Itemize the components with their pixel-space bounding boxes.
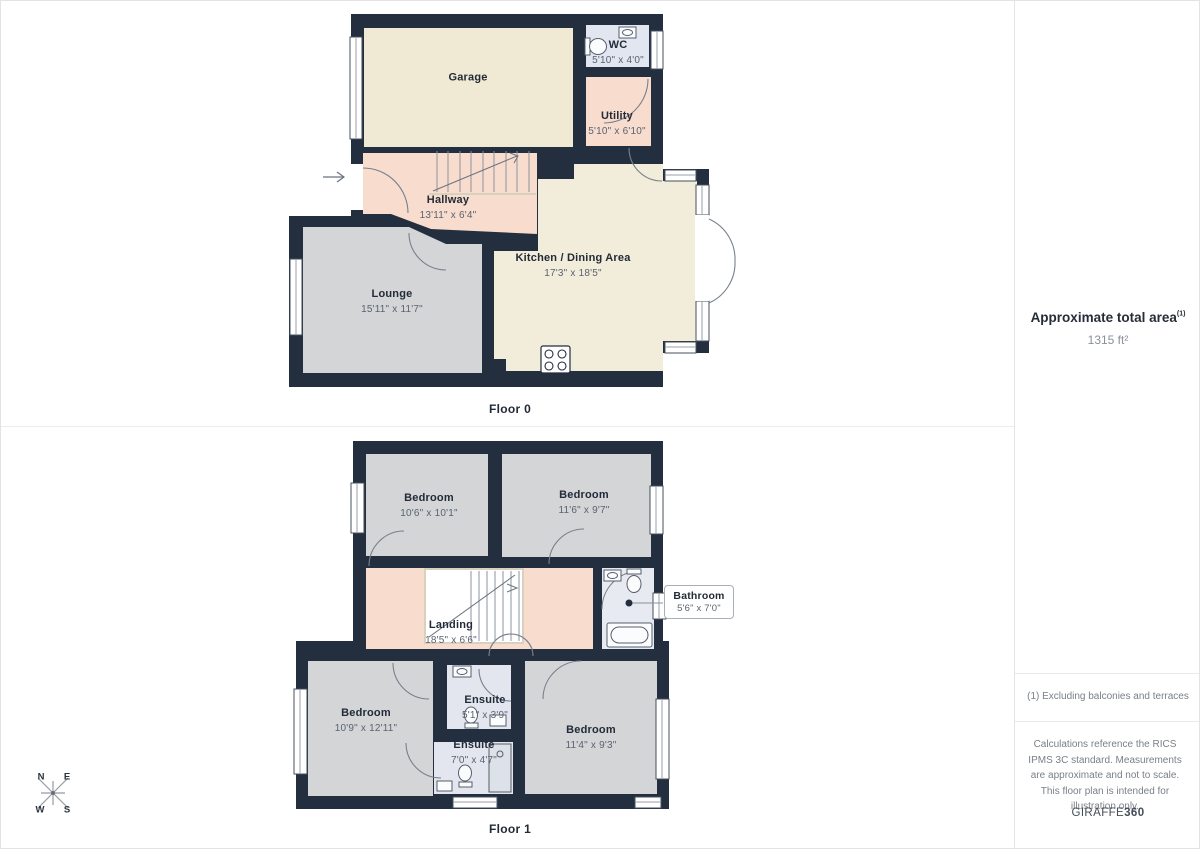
french-doors bbox=[695, 215, 735, 303]
bedroom-top-right-name: Bedroom bbox=[559, 489, 610, 502]
total-area-title: Approximate total area(1) bbox=[1015, 309, 1200, 327]
wc-name: WC bbox=[592, 39, 644, 52]
bathroom-callout: Bathroom 5'6" x 7'0" bbox=[664, 585, 734, 619]
compass-w: W bbox=[36, 805, 45, 816]
garage-name: Garage bbox=[448, 72, 487, 85]
wc-sink-icon bbox=[619, 27, 636, 38]
wc-dims: 5'10" x 4'0" bbox=[592, 54, 644, 67]
floorplan-page: Garage WC 5'10" x 4'0" Utility 5'10" x 6… bbox=[0, 0, 1200, 849]
bedroom-bottom-left-label: Bedroom 10'9" x 12'11" bbox=[335, 707, 397, 735]
kitchen-name: Kitchen / Dining Area bbox=[515, 252, 630, 265]
entrance-arrow-icon bbox=[323, 172, 344, 182]
bathroom-toilet-icon bbox=[627, 569, 641, 593]
stove-icon bbox=[541, 346, 570, 373]
sidebar-divider-bottom bbox=[1015, 721, 1200, 722]
total-area-block: Approximate total area(1) 1315 ft² bbox=[1015, 309, 1200, 347]
bedroom-top-right-label: Bedroom 11'6" x 9'7" bbox=[559, 489, 610, 517]
garage-room bbox=[364, 28, 573, 147]
landing-name: Landing bbox=[425, 619, 477, 632]
lounge-label: Lounge 15'11" x 11'7" bbox=[361, 288, 423, 316]
bedroom-bottom-left-name: Bedroom bbox=[335, 707, 397, 720]
kitchen-dims: 17'3" x 18'5" bbox=[515, 267, 630, 280]
lounge-name: Lounge bbox=[361, 288, 423, 301]
bedroom-bottom-right-dims: 11'4" x 9'3" bbox=[566, 739, 617, 752]
landing-label: Landing 18'5" x 6'6" bbox=[425, 619, 477, 647]
ensuite-lower-dims: 7'0" x 4'7" bbox=[451, 754, 497, 767]
lounge-dims: 15'11" x 11'7" bbox=[361, 303, 423, 316]
compass-s: S bbox=[64, 805, 70, 816]
floorplan-main-area: Garage WC 5'10" x 4'0" Utility 5'10" x 6… bbox=[1, 1, 1014, 849]
bedroom-bottom-right-name: Bedroom bbox=[566, 724, 617, 737]
brand-name: GIRAFFE bbox=[1071, 807, 1124, 819]
compass-n: N bbox=[38, 772, 45, 783]
bathroom-name: Bathroom bbox=[667, 590, 731, 602]
total-area-value: 1315 ft² bbox=[1015, 333, 1200, 347]
utility-dims: 5'10" x 6'10" bbox=[588, 125, 645, 138]
brand-suffix: 360 bbox=[1124, 807, 1144, 819]
ensuite-upper-name: Ensuite bbox=[462, 694, 508, 707]
ensuite-lower-label: Ensuite 7'0" x 4'7" bbox=[451, 739, 497, 767]
hallway-dims: 13'11" x 6'4" bbox=[420, 209, 477, 222]
bathroom-dims: 5'6" x 7'0" bbox=[667, 603, 731, 614]
floor0-label: Floor 0 bbox=[489, 402, 531, 416]
garage-label: Garage bbox=[448, 72, 487, 85]
sidebar: Approximate total area(1) 1315 ft² (1) E… bbox=[1014, 1, 1200, 849]
bedroom-top-left-name: Bedroom bbox=[400, 492, 457, 505]
ensuite-lower-name: Ensuite bbox=[451, 739, 497, 752]
ensuite-upper-dims: 5'1" x 3'9" bbox=[462, 709, 508, 722]
sidebar-divider-top bbox=[1015, 673, 1200, 674]
kitchen-label: Kitchen / Dining Area 17'3" x 18'5" bbox=[515, 252, 630, 280]
hallway-label: Hallway 13'11" x 6'4" bbox=[420, 194, 477, 222]
compass-e: E bbox=[64, 772, 70, 783]
bedroom-bottom-right-label: Bedroom 11'4" x 9'3" bbox=[566, 724, 617, 752]
bedroom-top-left-label: Bedroom 10'6" x 10'1" bbox=[400, 492, 457, 520]
utility-name: Utility bbox=[588, 110, 645, 123]
total-area-superscript: (1) bbox=[1177, 311, 1186, 318]
floor0-plan bbox=[289, 14, 735, 387]
bathroom-sink-icon bbox=[604, 570, 621, 581]
bedroom-top-left-dims: 10'6" x 10'1" bbox=[400, 507, 457, 520]
wc-label: WC 5'10" x 4'0" bbox=[592, 39, 644, 67]
ensuite-upper-label: Ensuite 5'1" x 3'9" bbox=[462, 694, 508, 722]
disclaimer-text: Calculations reference the RICS IPMS 3C … bbox=[1027, 737, 1183, 815]
compass-icon bbox=[38, 778, 68, 808]
bathtub-icon bbox=[607, 623, 652, 647]
bedroom-top-right-dims: 11'6" x 9'7" bbox=[559, 504, 610, 517]
footnote-text: (1) Excluding balconies and terraces bbox=[1015, 691, 1200, 702]
giraffe360-logo: GIRAFFE360 bbox=[1015, 807, 1200, 819]
total-area-title-text: Approximate total area bbox=[1031, 310, 1177, 325]
floor-divider bbox=[1, 426, 1014, 427]
utility-label: Utility 5'10" x 6'10" bbox=[588, 110, 645, 138]
landing-dims: 18'5" x 6'6" bbox=[425, 634, 477, 647]
hallway-name: Hallway bbox=[420, 194, 477, 207]
bedroom-bottom-left-dims: 10'9" x 12'11" bbox=[335, 722, 397, 735]
floor1-label: Floor 1 bbox=[489, 822, 531, 836]
